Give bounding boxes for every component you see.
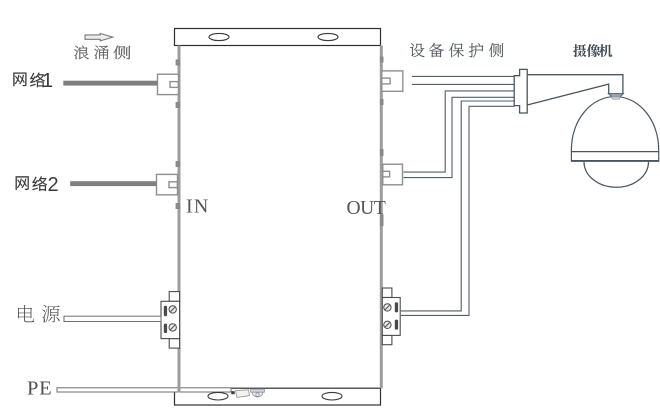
svg-text:OUT: OUT bbox=[347, 198, 386, 219]
svg-text:PE: PE bbox=[27, 378, 52, 400]
svg-text:2: 2 bbox=[48, 174, 59, 196]
svg-text:1: 1 bbox=[42, 70, 53, 92]
svg-text:IN: IN bbox=[186, 196, 210, 218]
